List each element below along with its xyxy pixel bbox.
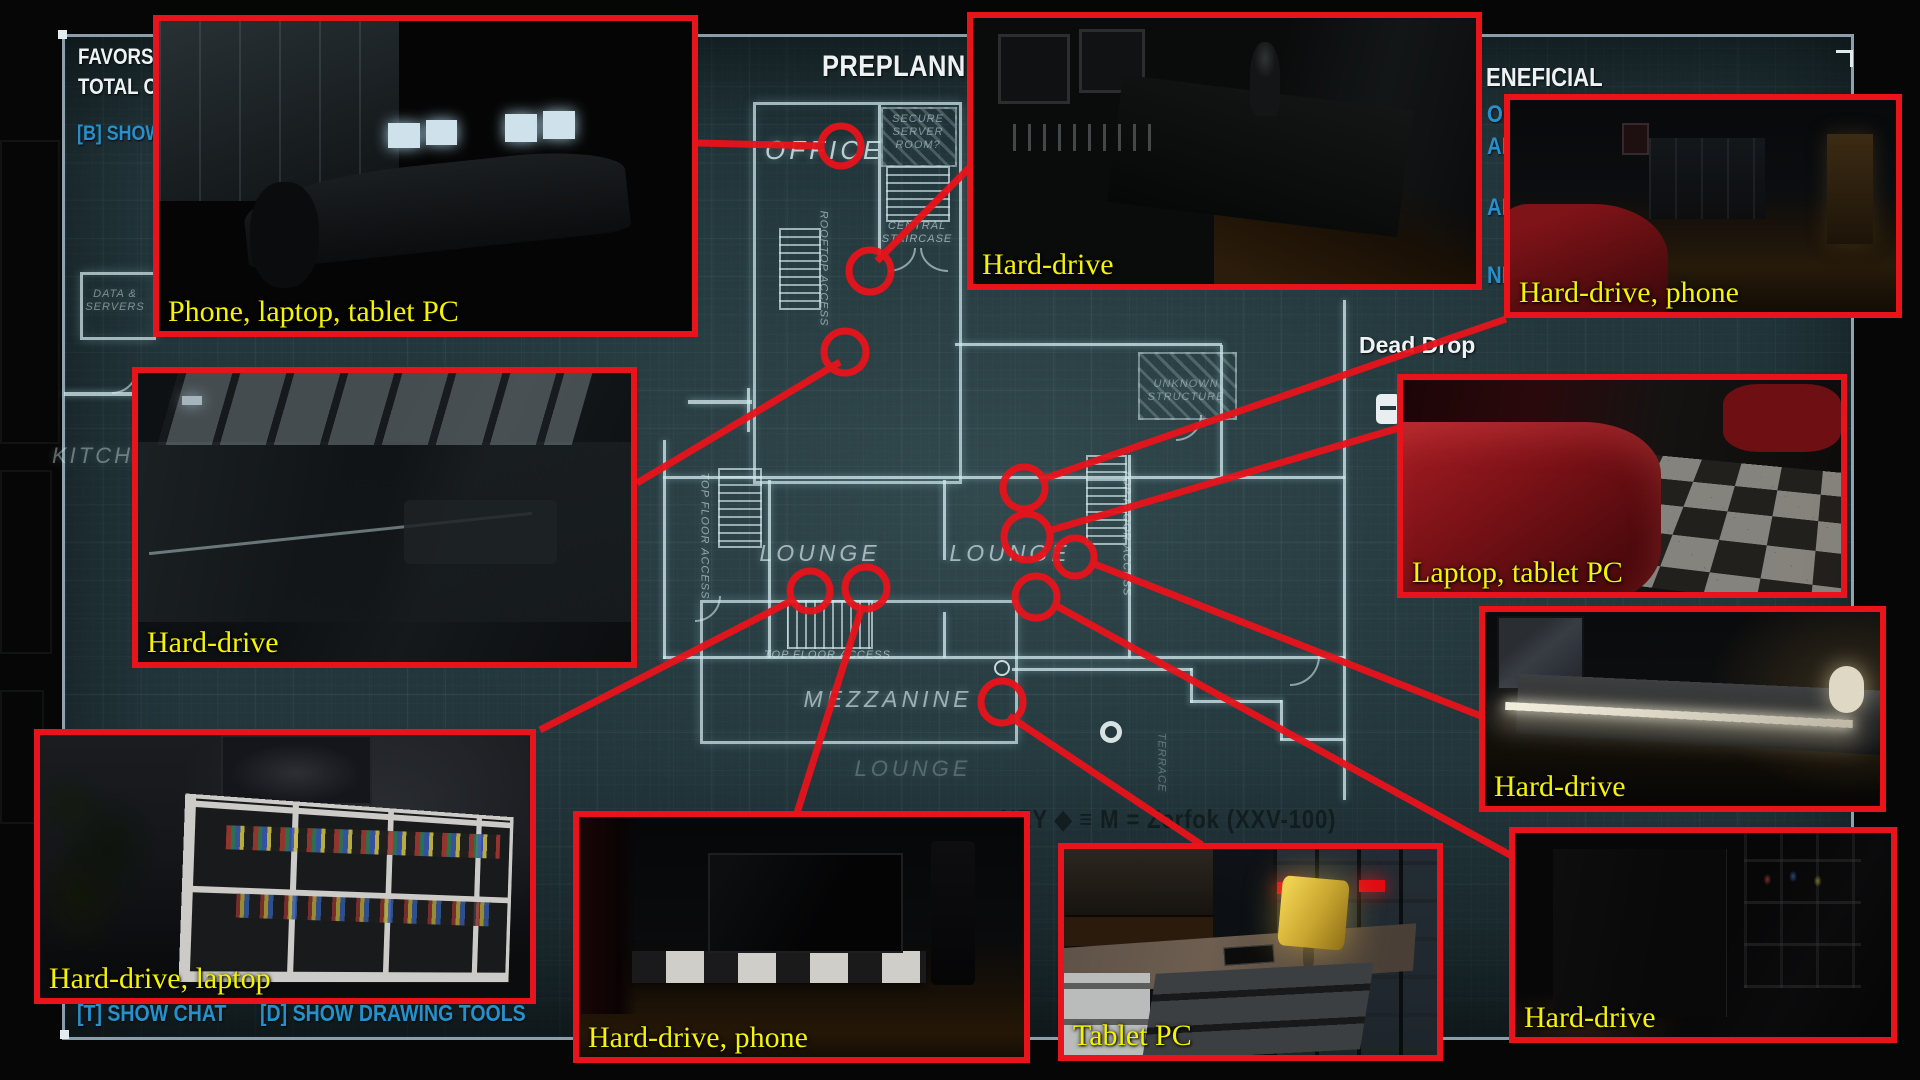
monitor-icon — [426, 120, 458, 145]
callout-label: Laptop, tablet PC — [1412, 556, 1623, 590]
dark-painting — [221, 735, 372, 805]
secure-server-line3: ROOM? — [895, 139, 940, 151]
callout-dresser-lamp: Tablet PC — [1058, 843, 1443, 1061]
callout-dark-shelves: Hard-drive — [1509, 827, 1897, 1043]
wall-segment — [1280, 700, 1283, 740]
dark-cabinet — [1553, 849, 1727, 1016]
callout-label: Hard-drive — [1524, 1001, 1656, 1035]
lamp-shade — [1277, 875, 1350, 951]
ceiling-light-icon — [182, 396, 202, 405]
room-label-lounge-left: LOUNGE — [752, 540, 888, 567]
show-chat-button[interactable]: [T] SHOW CHAT — [77, 1000, 226, 1027]
wall-segment — [747, 388, 750, 432]
unknown-line2: STRUCTURE — [1148, 391, 1225, 403]
room-label-office: OFFICE — [765, 135, 875, 166]
ghost-plan-fragment — [0, 140, 60, 444]
preplanning-screen: OFFICE SECURE SERVER ROOM? CENTRAL STAIR… — [0, 0, 1920, 1080]
secure-server-line2: SERVER — [892, 126, 943, 138]
speaker-tower — [931, 841, 976, 985]
binder-row — [1013, 124, 1154, 151]
corner-marker-icon — [60, 1030, 69, 1039]
callout-label: Hard-drive, laptop — [49, 962, 271, 996]
wall-segment — [1343, 300, 1346, 800]
money-watermark: NEY ◆ ≡ M = Zerfok (XXV-100) — [1000, 804, 1336, 835]
room-label-top-floor-left: TOP FLOOR ACCESS — [698, 473, 711, 597]
red-light-bar — [1359, 880, 1385, 892]
media-lowboard — [632, 951, 926, 982]
room-label-lounge-bottom: LOUNGE — [845, 756, 981, 782]
room-label-top-floor-bottom: TOP FLOOR ACCESS — [764, 649, 888, 662]
tablet-shape — [1224, 944, 1276, 966]
tv-screen — [708, 853, 903, 953]
wall-segment — [1012, 668, 1192, 671]
wall-segment — [663, 440, 666, 659]
wall-segment — [955, 343, 1222, 346]
wall-segment — [1280, 738, 1345, 741]
central-staircase-icon — [886, 166, 950, 222]
total-cost-label: TOTAL C — [78, 74, 157, 100]
callout-label: Hard-drive, phone — [1519, 276, 1739, 310]
room-label-lounge-right: LOUNGE — [942, 540, 1078, 567]
shelf-grid — [179, 793, 514, 982]
dead-drop-slot — [1380, 406, 1396, 410]
callout-label: Hard-drive, phone — [588, 1021, 808, 1055]
callout-label: Hard-drive — [982, 248, 1114, 282]
dead-drop-label: Dead Drop — [1359, 332, 1475, 359]
beneficial-label: ENEFICIAL — [1486, 62, 1603, 93]
unknown-line1: UNKNOWN — [1153, 378, 1218, 390]
favors-label: FAVORS — [78, 44, 154, 70]
corner-bracket-icon — [1836, 50, 1853, 67]
room-label-unknown-structure: UNKNOWN STRUCTURE — [1142, 378, 1230, 404]
monitor-icon — [505, 114, 537, 142]
callout-label: Hard-drive — [147, 626, 279, 660]
wall-art — [1622, 123, 1649, 155]
show-drawing-tools-button[interactable]: [D] SHOW DRAWING TOOLS — [260, 1000, 526, 1027]
glass-pane — [138, 442, 631, 621]
secure-server-line1: SECURE — [892, 113, 944, 125]
lit-doorway — [1827, 134, 1873, 244]
faint-shelf — [1744, 833, 1861, 988]
room-label-central-staircase: CENTRAL STAIRCASE — [878, 220, 956, 246]
wall-segment — [663, 476, 1345, 479]
map-node-icon — [994, 660, 1010, 676]
callout-label: Hard-drive — [1494, 770, 1626, 804]
callout-loft-bedroom: Hard-drive — [132, 367, 637, 668]
wall-segment — [1190, 700, 1282, 703]
callout-lounge-couch: Hard-drive, phone — [1504, 94, 1902, 318]
callout-server-shelf: Hard-drive — [967, 12, 1482, 290]
corner-marker-icon — [58, 30, 67, 39]
room-label-rooftop-access: ROOFTOP ACCESS — [817, 209, 830, 329]
red-armchair-shape — [1723, 384, 1841, 452]
statue-shape — [1250, 42, 1280, 116]
office-chair-shape — [250, 182, 319, 287]
callout-bookshelf: Hard-drive, laptop — [34, 729, 536, 1004]
bed-shape — [404, 500, 557, 564]
room-label-top-floor-right: TOP FLOOR ACCESS — [1120, 470, 1133, 594]
ghost-plan-fragment — [0, 470, 52, 654]
show-assets-button[interactable]: [B] SHOW — [77, 122, 162, 146]
callout-office-desk: Phone, laptop, tablet PC — [153, 15, 698, 337]
wall-segment — [1190, 668, 1193, 703]
top-floor-ladder-icon — [787, 600, 873, 649]
callout-label: Tablet PC — [1073, 1019, 1192, 1053]
plant-silhouette — [34, 751, 163, 951]
data-line1: DATA & — [93, 288, 137, 300]
room-label-mezzanine: MEZZANINE — [800, 686, 976, 713]
top-floor-stairs-icon — [718, 468, 762, 548]
map-node-icon — [1100, 721, 1122, 743]
callout-red-sofa: Laptop, tablet PC — [1397, 374, 1847, 598]
callout-sideboard: Hard-drive — [1479, 606, 1886, 812]
monitor-icon — [543, 111, 575, 139]
dark-curtain — [579, 817, 637, 1014]
picture-frame — [998, 34, 1069, 104]
monitor-icon — [388, 123, 420, 148]
central-line1: CENTRAL — [888, 220, 946, 232]
room-label-terrace: TERRACE — [1155, 715, 1168, 811]
wall-segment — [688, 400, 752, 404]
rooftop-stairs-icon — [779, 228, 821, 310]
room-label-data-servers: DATA & SERVERS — [80, 288, 150, 314]
skylight-windows — [157, 373, 592, 445]
callout-tv-room: Hard-drive, phone — [573, 811, 1030, 1063]
data-line2: SERVERS — [85, 301, 144, 313]
central-line2: STAIRCASE — [882, 233, 953, 245]
window-wall — [1649, 138, 1765, 219]
room-label-secure-server: SECURE SERVER ROOM? — [880, 113, 956, 152]
callout-label: Phone, laptop, tablet PC — [168, 295, 459, 329]
lamp-shade — [1829, 666, 1865, 713]
